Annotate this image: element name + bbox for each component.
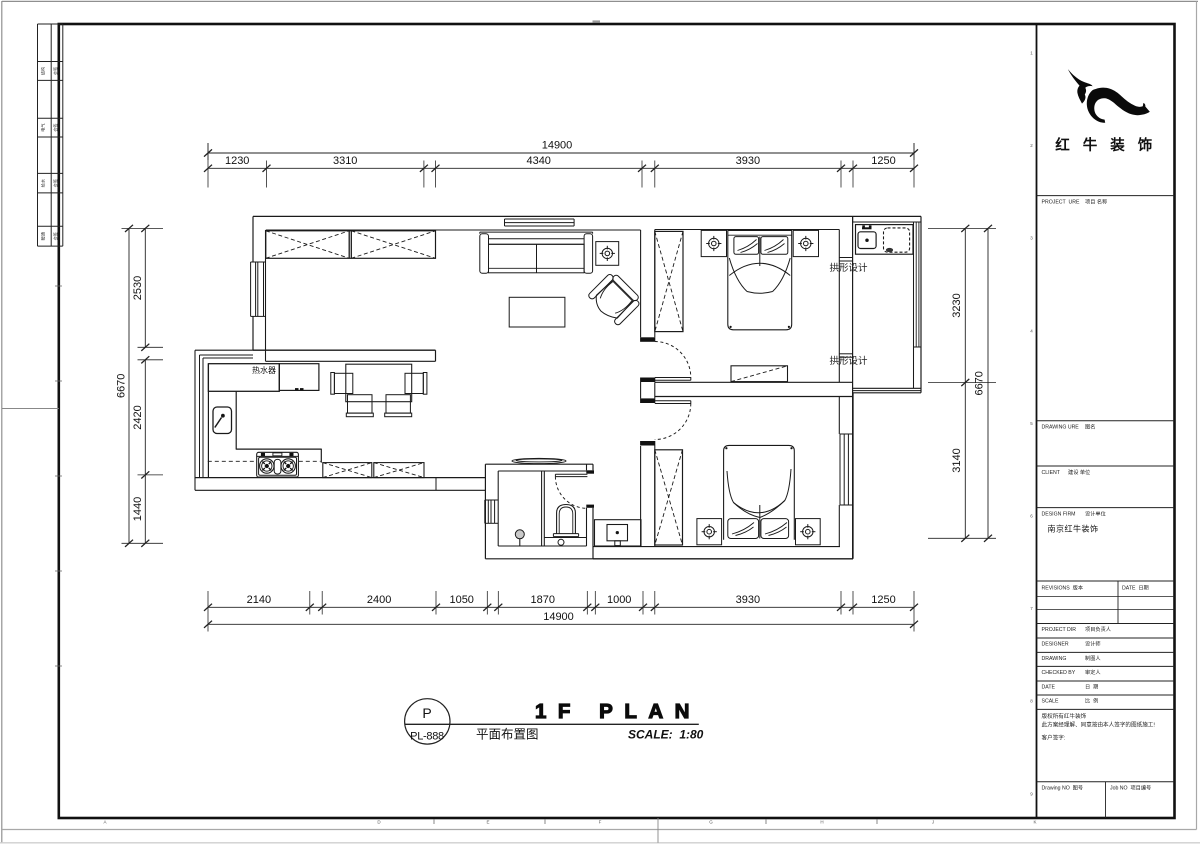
svg-text:红 牛 装 饰: 红 牛 装 饰	[1055, 136, 1157, 154]
svg-text:A: A	[103, 820, 106, 825]
svg-text:DATE: DATE	[1042, 684, 1056, 690]
svg-text:1440: 1440	[132, 497, 144, 521]
svg-text:会签: 会签	[52, 123, 59, 132]
svg-text:9: 9	[1030, 791, 1033, 796]
svg-text:3930: 3930	[736, 594, 760, 606]
svg-text:客户签字:: 客户签字:	[1042, 734, 1066, 742]
svg-text:拱形设计: 拱形设计	[829, 355, 868, 367]
svg-text:1000: 1000	[607, 594, 631, 606]
svg-text:3310: 3310	[333, 155, 357, 167]
svg-text:6: 6	[1030, 514, 1033, 519]
svg-text:SCALE: SCALE	[1042, 698, 1060, 704]
svg-text:1250: 1250	[871, 155, 895, 167]
svg-text:暖通: 暖通	[40, 231, 47, 240]
svg-text:制图人: 制图人	[1085, 654, 1101, 662]
svg-text:3140: 3140	[951, 448, 963, 472]
svg-text:2530: 2530	[132, 276, 144, 300]
svg-text:平面布置图: 平面布置图	[476, 728, 539, 742]
svg-text:DESIGN FIRM: DESIGN FIRM	[1042, 512, 1076, 518]
svg-text:6670: 6670	[115, 374, 127, 398]
svg-text:设计师: 设计师	[1085, 640, 1101, 648]
svg-text:3: 3	[1030, 236, 1033, 241]
svg-text:DESIGNER: DESIGNER	[1042, 642, 1069, 648]
svg-text:会签: 会签	[52, 66, 59, 75]
svg-text:3230: 3230	[951, 293, 963, 317]
svg-text:会签: 会签	[52, 178, 59, 187]
svg-text:2: 2	[1030, 143, 1033, 148]
svg-text:3930: 3930	[736, 155, 760, 167]
svg-text:D: D	[377, 820, 381, 825]
svg-text:J: J	[932, 820, 934, 825]
svg-text:E: E	[486, 820, 489, 825]
svg-text:项目 名称: 项目 名称	[1085, 198, 1107, 206]
svg-text:CLIENT: CLIENT	[1042, 470, 1061, 476]
svg-text:SCALE: 1:80: SCALE: 1:80	[628, 728, 704, 742]
svg-text:版权所有红牛装饰: 版权所有红牛装饰	[1042, 712, 1087, 720]
svg-text:DRAWING: DRAWING	[1042, 656, 1067, 662]
svg-text:14900: 14900	[542, 140, 573, 152]
svg-text:PROJECT DIR: PROJECT DIR	[1042, 627, 1077, 633]
svg-text:设计单位: 设计单位	[1085, 510, 1106, 518]
svg-text:F: F	[599, 820, 602, 825]
svg-text:Job NO 项目编号: Job NO 项目编号	[1110, 784, 1151, 792]
svg-text:给水: 给水	[40, 178, 47, 187]
svg-text:PL-888: PL-888	[410, 731, 444, 743]
svg-text:比 例: 比 例	[1085, 696, 1098, 704]
svg-text:1F PLAN: 1F PLAN	[535, 700, 701, 723]
svg-text:DATE 日期: DATE 日期	[1122, 585, 1149, 592]
svg-text:K: K	[1033, 820, 1036, 825]
svg-text:2400: 2400	[367, 594, 391, 606]
svg-text:结构: 结构	[40, 67, 47, 75]
svg-text:热水器: 热水器	[252, 365, 276, 375]
svg-text:5: 5	[1030, 421, 1033, 426]
svg-text:P: P	[422, 705, 431, 721]
svg-text:DRAWING URE: DRAWING URE	[1042, 425, 1080, 431]
svg-text:1870: 1870	[531, 594, 555, 606]
svg-text:6670: 6670	[974, 371, 986, 395]
svg-text:14900: 14900	[543, 611, 574, 623]
svg-text:电气: 电气	[40, 123, 46, 132]
svg-text:CHECKED BY: CHECKED BY	[1042, 670, 1076, 676]
svg-text:1: 1	[1030, 51, 1033, 56]
svg-text:2140: 2140	[247, 594, 271, 606]
svg-text:日 期: 日 期	[1085, 683, 1098, 690]
svg-text:1250: 1250	[871, 594, 895, 606]
svg-text:REVISIONS 版本: REVISIONS 版本	[1042, 584, 1084, 592]
svg-text:此方案经理解、同意按由本人签字的图纸施工!: 此方案经理解、同意按由本人签字的图纸施工!	[1042, 721, 1156, 729]
svg-text:审定人: 审定人	[1085, 668, 1101, 676]
svg-text:7: 7	[1030, 606, 1033, 611]
svg-text:PROJECT URE: PROJECT URE	[1042, 200, 1080, 206]
svg-text:G: G	[709, 820, 713, 825]
svg-text:图名: 图名	[1085, 423, 1095, 431]
svg-text:H: H	[820, 820, 823, 825]
svg-text:项目负责人: 项目负责人	[1085, 625, 1111, 633]
svg-text:拱形设计: 拱形设计	[829, 262, 868, 274]
svg-text:1230: 1230	[225, 155, 249, 167]
svg-text:8: 8	[1030, 699, 1033, 704]
svg-text:Drawing NO 图号: Drawing NO 图号	[1042, 785, 1084, 792]
svg-text:建设 单位: 建设 单位	[1068, 468, 1090, 476]
svg-text:4340: 4340	[526, 155, 550, 167]
svg-text:4: 4	[1030, 328, 1033, 333]
svg-text:2420: 2420	[132, 405, 144, 429]
svg-text:南京红牛装饰: 南京红牛装饰	[1048, 524, 1099, 534]
svg-text:1050: 1050	[449, 594, 473, 606]
svg-text:会签: 会签	[52, 231, 59, 240]
